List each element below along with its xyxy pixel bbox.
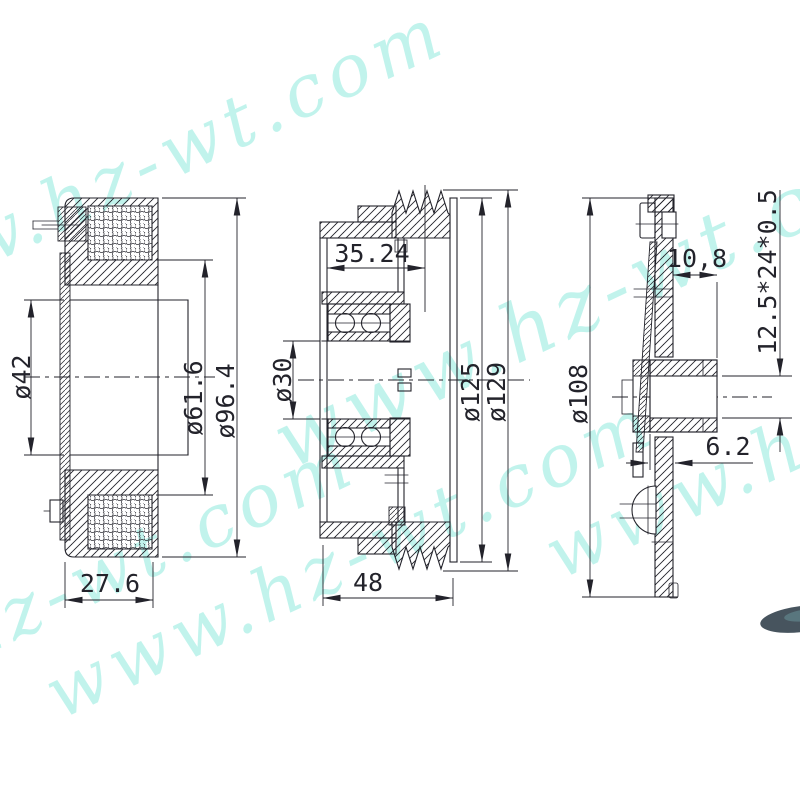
technical-drawing-page: www.hz-wt.com www.hz-wt.com www.hz-wt.co… xyxy=(0,0,800,800)
dim-label-coil-outer: ø96.4 xyxy=(211,363,240,438)
photo-fragment xyxy=(759,601,800,637)
armature-disc-lower xyxy=(655,437,673,597)
dim-coil-inner: ø61.6 xyxy=(156,260,213,495)
pulley-rim-grooves-top xyxy=(392,191,450,238)
pulley-step-bottom xyxy=(358,538,396,554)
dim-label-hub-spline: 12.5*24*0.5 xyxy=(753,189,782,355)
dim-label-hub-gap: 6.2 xyxy=(705,432,750,461)
pulley-flange-top xyxy=(320,222,396,238)
dim-label-pulley-outer: ø129 xyxy=(482,362,511,422)
coil-winding-bottom xyxy=(88,495,152,549)
clutch-assembly-drawing: www.hz-wt.com www.hz-wt.com www.hz-wt.co… xyxy=(0,0,800,800)
coil-core xyxy=(70,285,188,470)
coil-winding-top xyxy=(88,206,152,260)
dim-coil-bore: ø42 xyxy=(7,300,64,455)
dim-label-pulley-bore: ø30 xyxy=(268,357,297,402)
dim-label-hub-outer: ø108 xyxy=(564,364,593,424)
bearing-top xyxy=(328,304,390,341)
dim-label-pulley-groove-offset: 35.24 xyxy=(334,239,409,268)
terminal-boot xyxy=(58,207,86,241)
dim-label-coil-bore: ø42 xyxy=(7,354,36,399)
pulley-flange-bottom xyxy=(320,522,396,538)
dim-label-pulley-width: 48 xyxy=(353,568,383,597)
dim-label-coil-width: 27.6 xyxy=(80,569,140,598)
dim-label-hub-offset: 10,8 xyxy=(667,244,727,273)
dim-label-coil-inner: ø61.6 xyxy=(179,360,208,435)
dim-label-pulley-groove-root: ø125 xyxy=(456,362,485,422)
pulley-step-top xyxy=(358,206,396,222)
